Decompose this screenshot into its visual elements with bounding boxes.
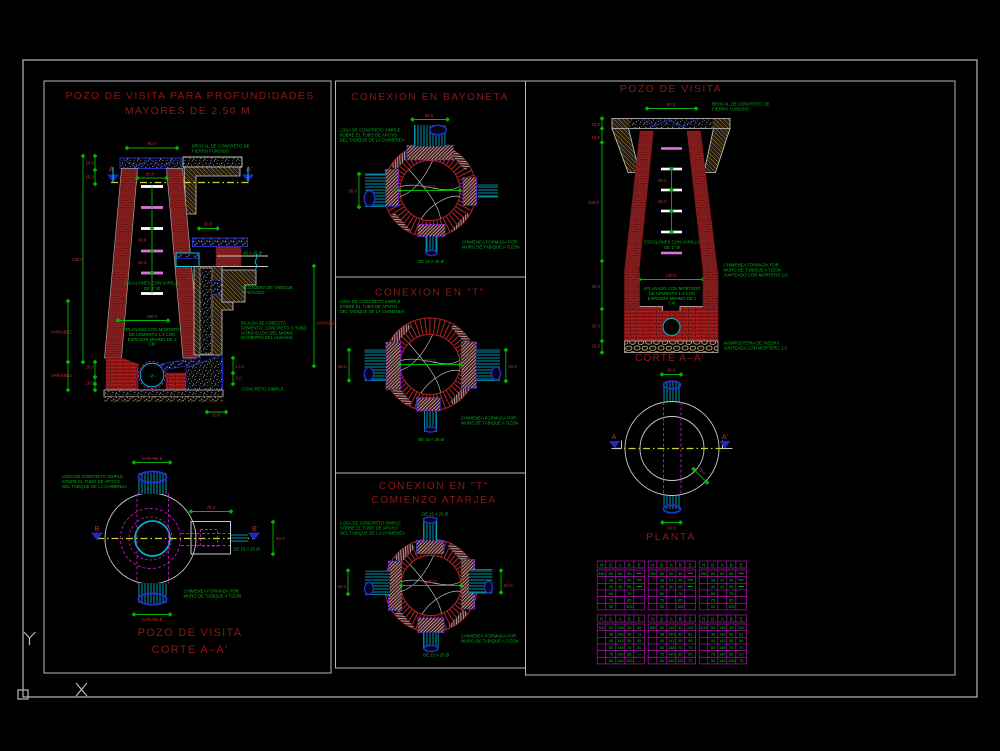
svg-text:H: H — [600, 616, 603, 621]
svg-text:A: A — [721, 616, 724, 621]
svg-text:- Ø -: - Ø - — [148, 374, 157, 379]
svg-text:CM: CM — [149, 342, 156, 347]
svg-text:60: 60 — [669, 571, 674, 576]
svg-text:250.0: 250.0 — [72, 257, 84, 262]
svg-text:B: B — [679, 616, 682, 621]
svg-text:40.0: 40.0 — [657, 199, 666, 204]
svg-text:—: — — [637, 652, 641, 657]
svg-text:45: 45 — [609, 584, 614, 589]
svg-text:B: B — [628, 616, 631, 621]
svg-text:15.0: 15.0 — [591, 122, 600, 127]
svg-text:A': A' — [722, 434, 728, 441]
svg-text:50: 50 — [711, 625, 716, 630]
svg-text:60.0: 60.0 — [667, 102, 676, 107]
svg-text:DEL TABIQUE DE LA CHIMENEA: DEL TABIQUE DE LA CHIMENEA — [340, 530, 405, 535]
svg-text:H: H — [651, 562, 654, 567]
svg-text:148: 148 — [668, 645, 675, 650]
svg-text:A': A' — [246, 167, 252, 174]
svg-text:140: 140 — [668, 652, 675, 657]
svg-text:55: 55 — [627, 638, 632, 643]
svg-text:75: 75 — [711, 598, 716, 603]
svg-text:DE 15 A 25 Ø: DE 15 A 25 Ø — [234, 547, 261, 552]
svg-text:85: 85 — [729, 652, 734, 657]
svg-text:55: 55 — [637, 638, 642, 643]
svg-text:140: 140 — [719, 632, 726, 637]
svg-text:75.0: 75.0 — [207, 505, 216, 510]
svg-text:CONEXION EN BAYONETA: CONEXION EN BAYONETA — [351, 92, 509, 103]
svg-text:CORTE A–A': CORTE A–A' — [635, 353, 705, 364]
svg-text:55: 55 — [729, 584, 734, 589]
svg-text:105: 105 — [626, 658, 633, 663]
svg-text:MURO DE TABIQUE A TIZON: MURO DE TABIQUE A TIZON — [461, 420, 519, 425]
svg-text:10.0: 10.0 — [85, 381, 94, 386]
svg-text:COMIENZO ATARJEA: COMIENZO ATARJEA — [371, 495, 496, 506]
svg-text:DEL TABIQUE DE LA CHIMENEA: DEL TABIQUE DE LA CHIMENEA — [340, 137, 405, 142]
svg-text:E: E — [740, 562, 743, 567]
svg-text:D: D — [660, 616, 663, 621]
svg-text:E: E — [689, 616, 692, 621]
svg-text:50.0: 50.0 — [348, 189, 357, 194]
svg-text:A: A — [670, 616, 673, 621]
svg-text:60.0: 60.0 — [425, 113, 434, 118]
svg-text:H: H — [702, 616, 705, 621]
svg-text:E: E — [638, 616, 641, 621]
svg-text:95: 95 — [739, 638, 744, 643]
svg-text:45: 45 — [660, 584, 665, 589]
svg-text:DE 15 A 25 Ø: DE 15 A 25 Ø — [423, 653, 450, 658]
svg-text:100.0: 100.0 — [425, 358, 437, 363]
svg-text:25.0: 25.0 — [85, 175, 94, 180]
svg-text:70: 70 — [729, 591, 734, 596]
svg-text:200.0: 200.0 — [588, 200, 600, 205]
svg-text:140: 140 — [719, 652, 726, 657]
svg-text:DE 1" Ø: DE 1" Ø — [144, 286, 160, 291]
svg-text:38: 38 — [711, 578, 716, 583]
svg-text:—: — — [637, 658, 641, 663]
svg-text:60: 60 — [618, 571, 623, 576]
svg-text:30.0: 30.0 — [667, 368, 676, 373]
svg-text:60: 60 — [720, 571, 725, 576]
svg-text:70: 70 — [678, 591, 683, 596]
svg-text:5.0: 5.0 — [236, 376, 243, 381]
svg-text:CORTE A–A': CORTE A–A' — [152, 644, 229, 656]
svg-text:40: 40 — [729, 571, 734, 576]
svg-text:DE 1" Ø: DE 1" Ø — [664, 245, 680, 250]
svg-text:DE 15 A 25 Ø: DE 15 A 25 Ø — [422, 512, 449, 517]
svg-text:VARIABLE: VARIABLE — [141, 456, 162, 461]
svg-text:38: 38 — [609, 632, 614, 637]
svg-text:140: 140 — [668, 632, 675, 637]
svg-text:148: 148 — [668, 625, 675, 630]
svg-text:60: 60 — [660, 645, 665, 650]
svg-text:40: 40 — [669, 584, 674, 589]
svg-text:90.0: 90.0 — [148, 141, 157, 146]
svg-text:VARIABLE: VARIABLE — [51, 373, 72, 378]
svg-text:105: 105 — [728, 604, 735, 609]
svg-text:85: 85 — [678, 598, 683, 603]
svg-text:E: E — [740, 616, 743, 621]
svg-text:60: 60 — [609, 591, 614, 596]
svg-text:E: E — [689, 562, 692, 567]
svg-text:100.0: 100.0 — [666, 273, 678, 278]
svg-text:45: 45 — [678, 632, 683, 637]
svg-text:55: 55 — [729, 638, 734, 643]
svg-text:140: 140 — [617, 632, 624, 637]
svg-text:DEL TABIQUE DE LA CHIMENEA: DEL TABIQUE DE LA CHIMENEA — [62, 484, 127, 489]
svg-text:ESCALONES CON VARILLA: ESCALONES CON VARILLA — [124, 281, 180, 286]
svg-text:38: 38 — [609, 578, 614, 583]
svg-text:50.0: 50.0 — [509, 364, 518, 369]
svg-text:50: 50 — [660, 625, 665, 630]
svg-text:55: 55 — [678, 638, 683, 643]
svg-text:70: 70 — [739, 645, 744, 650]
svg-text:40: 40 — [729, 625, 734, 630]
svg-text:81: 81 — [739, 632, 744, 637]
svg-text:90: 90 — [660, 604, 665, 609]
svg-text:PLANTA: PLANTA — [646, 531, 696, 543]
svg-text:H: H — [702, 562, 705, 567]
svg-text:105: 105 — [677, 658, 684, 663]
svg-text:143: 143 — [668, 638, 675, 643]
svg-text:A: A — [619, 562, 622, 567]
svg-text:60: 60 — [660, 591, 665, 596]
svg-text:60.0: 60.0 — [146, 172, 155, 177]
svg-text:DIAMETRO DEL ALBANAL: DIAMETRO DEL ALBANAL — [241, 335, 294, 340]
svg-text:B: B — [730, 562, 733, 567]
svg-text:90: 90 — [609, 604, 614, 609]
svg-text:75: 75 — [739, 658, 744, 663]
svg-text:JUNTEADA CON MORTERO 1:2: JUNTEADA CON MORTERO 1:2 — [724, 345, 788, 350]
svg-text:20: 20 — [637, 645, 642, 650]
svg-text:40.0: 40.0 — [657, 178, 666, 183]
svg-text:40.0: 40.0 — [138, 260, 147, 265]
svg-text:CONCRETO SIMPLE: CONCRETO SIMPLE — [242, 387, 284, 392]
svg-text:DE 15 A 25 Ø: DE 15 A 25 Ø — [418, 259, 445, 264]
svg-text:MAYORES DE 2.50 M: MAYORES DE 2.50 M — [125, 105, 251, 117]
svg-text:37: 37 — [720, 578, 725, 583]
svg-text:105: 105 — [728, 658, 735, 663]
svg-text:75: 75 — [609, 652, 614, 657]
svg-text:50: 50 — [711, 571, 716, 576]
svg-text:D: D — [711, 616, 714, 621]
svg-text:17.0: 17.0 — [236, 364, 245, 369]
svg-text:105: 105 — [626, 604, 633, 609]
svg-text:145: 145 — [617, 658, 624, 663]
svg-text:40: 40 — [720, 584, 725, 589]
svg-text:D: D — [609, 616, 612, 621]
svg-text:75: 75 — [688, 658, 693, 663]
svg-text:VARIABLE: VARIABLE — [51, 330, 72, 335]
svg-text:55: 55 — [627, 584, 632, 589]
svg-text:90: 90 — [711, 604, 716, 609]
svg-text:30.0: 30.0 — [204, 222, 213, 227]
svg-text:38: 38 — [660, 632, 665, 637]
svg-text:MURO DE TABIQUE A TIZON: MURO DE TABIQUE A TIZON — [461, 638, 519, 643]
svg-text:60: 60 — [711, 591, 716, 596]
svg-text:B: B — [628, 562, 631, 567]
svg-text:70: 70 — [688, 645, 693, 650]
svg-text:100.0: 100.0 — [425, 184, 437, 189]
svg-text:45: 45 — [729, 578, 734, 583]
svg-text:70: 70 — [678, 645, 683, 650]
svg-text:75: 75 — [609, 598, 614, 603]
svg-text:H: H — [600, 562, 603, 567]
svg-text:70: 70 — [627, 645, 632, 650]
svg-text:150: 150 — [598, 572, 604, 576]
svg-text:38: 38 — [660, 578, 665, 583]
svg-text:VARIABLE: VARIABLE — [141, 617, 162, 622]
svg-text:148: 148 — [617, 645, 624, 650]
svg-text:100.0: 100.0 — [426, 579, 438, 584]
svg-text:POZO DE VISITA: POZO DE VISITA — [620, 83, 722, 95]
svg-text:145: 145 — [719, 658, 726, 663]
svg-text:75: 75 — [660, 598, 665, 603]
svg-text:38: 38 — [711, 632, 716, 637]
svg-text:85: 85 — [729, 598, 734, 603]
svg-text:CM: CM — [669, 301, 676, 306]
svg-text:APICHADO: APICHADO — [242, 290, 265, 295]
svg-text:350: 350 — [649, 626, 655, 630]
svg-text:50.0: 50.0 — [591, 324, 600, 329]
svg-text:85: 85 — [627, 598, 632, 603]
svg-text:ESCALONES CON VARILLA: ESCALONES CON VARILLA — [644, 240, 700, 245]
svg-text:45: 45 — [711, 638, 716, 643]
svg-text:FIERRO FUNDIDO: FIERRO FUNDIDO — [192, 148, 230, 153]
svg-text:B: B — [730, 616, 733, 621]
svg-text:105: 105 — [677, 604, 684, 609]
svg-text:50: 50 — [609, 571, 614, 576]
svg-text:100.0: 100.0 — [147, 314, 159, 319]
svg-text:20: 20 — [688, 652, 693, 657]
svg-text:85: 85 — [678, 652, 683, 657]
svg-text:50: 50 — [637, 625, 642, 630]
svg-text:90: 90 — [711, 658, 716, 663]
svg-text:50: 50 — [609, 625, 614, 630]
svg-text:85: 85 — [627, 652, 632, 657]
svg-text:148: 148 — [617, 625, 624, 630]
svg-text:B: B — [679, 562, 682, 567]
svg-text:90: 90 — [660, 658, 665, 663]
svg-text:148: 148 — [719, 625, 726, 630]
svg-text:40: 40 — [678, 571, 683, 576]
svg-text:FIERRO FUNDIDO: FIERRO FUNDIDO — [712, 106, 750, 111]
svg-text:143: 143 — [617, 638, 624, 643]
svg-text:DE 15 A 25 Ø: DE 15 A 25 Ø — [418, 437, 445, 442]
svg-text:75: 75 — [711, 652, 716, 657]
svg-text:37: 37 — [669, 578, 674, 583]
svg-text:45: 45 — [627, 632, 632, 637]
svg-text:40.0: 40.0 — [138, 238, 147, 243]
svg-text:D: D — [711, 562, 714, 567]
svg-text:75: 75 — [660, 652, 665, 657]
svg-text:400: 400 — [700, 626, 706, 630]
svg-text:50: 50 — [660, 571, 665, 576]
svg-text:55: 55 — [678, 584, 683, 589]
svg-text:45: 45 — [729, 632, 734, 637]
svg-text:40: 40 — [627, 625, 632, 630]
svg-text:20: 20 — [739, 652, 744, 657]
svg-text:70: 70 — [627, 591, 632, 596]
svg-text:POZO DE VISITA: POZO DE VISITA — [138, 627, 243, 639]
svg-text:200: 200 — [649, 572, 655, 576]
svg-text:DEL TABIQUE DE LA CHIMENEA: DEL TABIQUE DE LA CHIMENEA — [340, 309, 405, 314]
svg-text:45: 45 — [660, 638, 665, 643]
svg-text:40: 40 — [678, 625, 683, 630]
svg-text:E: E — [638, 562, 641, 567]
svg-text:37: 37 — [618, 578, 623, 583]
svg-text:JUNTEADO CON MORTERO 1:5: JUNTEADO CON MORTERO 1:5 — [724, 272, 789, 277]
svg-text:250: 250 — [700, 572, 706, 576]
svg-text:30.0: 30.0 — [591, 284, 600, 289]
svg-text:A: A — [612, 434, 617, 441]
svg-text:VARIABLE: VARIABLE — [316, 321, 337, 326]
svg-text:40: 40 — [627, 571, 632, 576]
svg-text:40: 40 — [618, 584, 623, 589]
svg-text:100: 100 — [738, 625, 745, 630]
svg-text:15.0: 15.0 — [591, 135, 600, 140]
svg-text:MURO DE TABIQUE A TIZON: MURO DE TABIQUE A TIZON — [462, 244, 520, 249]
svg-text:20.0: 20.0 — [85, 365, 94, 370]
svg-text:60.0: 60.0 — [667, 526, 676, 531]
svg-text:140: 140 — [617, 652, 624, 657]
svg-text:81: 81 — [688, 632, 693, 637]
svg-text:45: 45 — [678, 578, 683, 583]
svg-text:143: 143 — [719, 638, 726, 643]
svg-text:45: 45 — [711, 584, 716, 589]
svg-text:B: B — [95, 526, 100, 533]
svg-text:45: 45 — [609, 638, 614, 643]
svg-text:POZO DE VISITA PARA PROFUNDIDA: POZO DE VISITA PARA PROFUNDIDADES — [65, 90, 314, 102]
svg-text:50.0: 50.0 — [504, 583, 513, 588]
svg-text:60: 60 — [711, 645, 716, 650]
svg-text:15.0: 15.0 — [591, 344, 600, 349]
svg-text:H: H — [651, 616, 654, 621]
svg-text:148: 148 — [719, 645, 726, 650]
svg-text:D: D — [660, 562, 663, 567]
svg-text:50.0: 50.0 — [337, 584, 346, 589]
svg-text:45: 45 — [627, 578, 632, 583]
svg-text:90: 90 — [609, 658, 614, 663]
svg-text:145: 145 — [668, 658, 675, 663]
svg-text:50.0: 50.0 — [338, 364, 347, 369]
svg-text:50.0: 50.0 — [276, 536, 285, 541]
svg-text:70: 70 — [729, 645, 734, 650]
svg-text:100: 100 — [687, 625, 694, 630]
svg-text:13: 13 — [637, 632, 642, 637]
svg-text:CONEXION EN "T": CONEXION EN "T" — [379, 481, 489, 492]
svg-text:A: A — [619, 616, 622, 621]
svg-text:B': B' — [252, 526, 258, 533]
svg-text:20.0: 20.0 — [85, 161, 94, 166]
svg-text:95: 95 — [688, 638, 693, 643]
svg-text:MURO DE TABIQUE A TIZON: MURO DE TABIQUE A TIZON — [184, 593, 242, 598]
svg-text:CONEXION EN "T": CONEXION EN "T" — [375, 288, 485, 299]
svg-text:A: A — [670, 562, 673, 567]
svg-text:20.0: 20.0 — [212, 413, 221, 418]
svg-text:A: A — [721, 562, 724, 567]
svg-text:60: 60 — [609, 645, 614, 650]
svg-text:300: 300 — [598, 626, 604, 630]
svg-text:D: D — [609, 562, 612, 567]
